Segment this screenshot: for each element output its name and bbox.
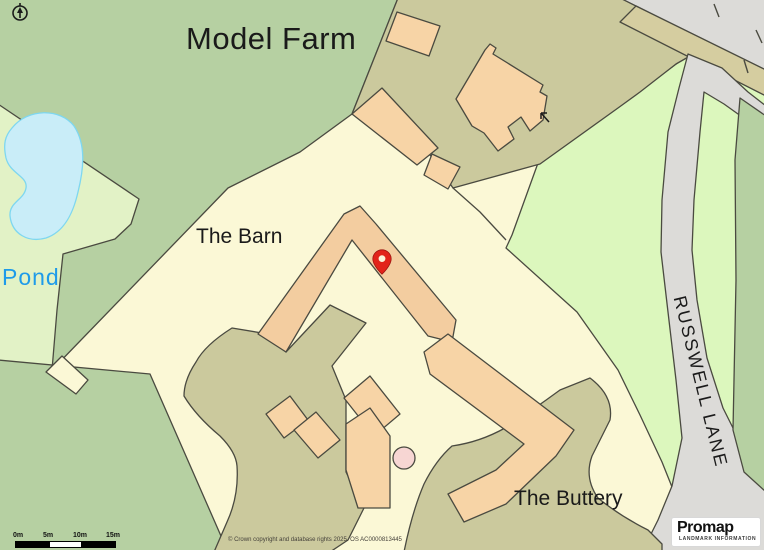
label-the-barn: The Barn <box>196 226 282 247</box>
location-pin-icon <box>372 249 392 275</box>
region-field-right <box>733 98 764 492</box>
scale-tick-10: 10m <box>73 532 87 539</box>
scale-tick-15: 15m <box>106 532 120 539</box>
promap-logo-subtitle: LANDMARK INFORMATION <box>677 536 755 542</box>
copyright-notice: © Crown copyright and database rights 20… <box>228 537 402 543</box>
scale-bar-segments <box>15 541 116 548</box>
scale-segment-2 <box>49 542 82 547</box>
map-canvas[interactable]: Model Farm The Barn Pond The Buttery RUS… <box>0 0 764 550</box>
label-model-farm: Model Farm <box>186 23 356 54</box>
scale-segment-3 <box>82 542 115 547</box>
label-pond: Pond <box>2 266 60 289</box>
scale-tick-5: 5m <box>43 532 53 539</box>
map-base-layer <box>0 0 764 550</box>
promap-logo: Promap LANDMARK INFORMATION <box>671 517 761 547</box>
scale-segment-1 <box>16 542 49 547</box>
north-compass-icon <box>6 1 36 31</box>
scale-bar: 0m 5m 10m 15m <box>13 532 133 548</box>
logo-tagline: LANDMARK INFORMATION <box>679 536 756 542</box>
feature-tank-circle <box>393 447 415 469</box>
promap-logo-title: Promap <box>677 519 755 536</box>
scale-tick-0: 0m <box>13 532 23 539</box>
label-the-buttery: The Buttery <box>514 488 623 509</box>
